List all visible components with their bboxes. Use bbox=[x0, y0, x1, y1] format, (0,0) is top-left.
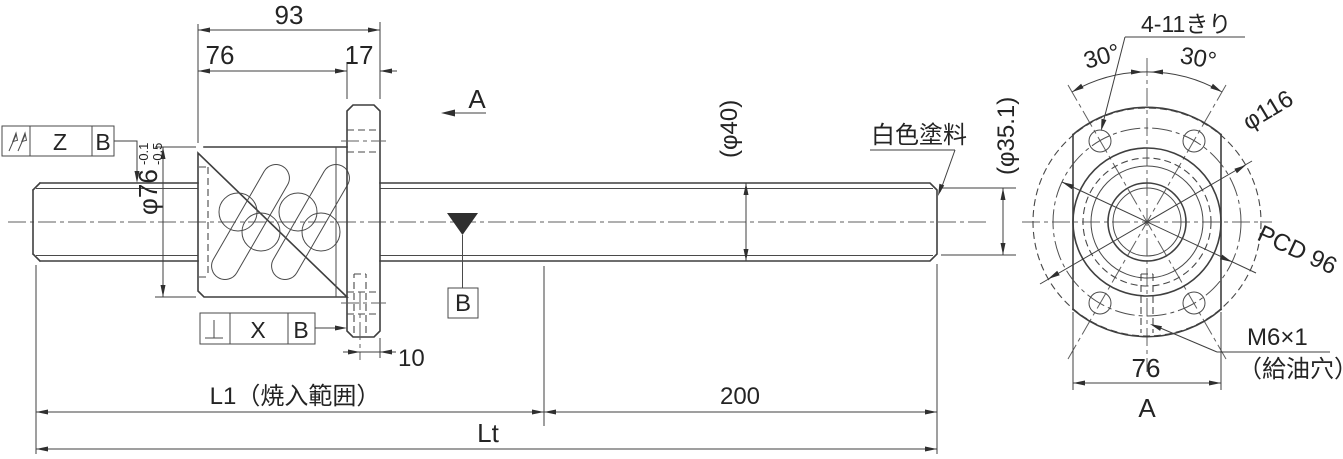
dim-l1-200-lt: L1（焼入範囲） 200 Lt bbox=[36, 264, 937, 454]
gdt-runout-datum: B bbox=[95, 129, 110, 155]
dim-10: 10 bbox=[343, 338, 425, 372]
end-view-label: A bbox=[1138, 393, 1156, 423]
view-arrow-a-text: A bbox=[468, 84, 486, 114]
gdt-perpendicularity-frame: X B bbox=[200, 313, 347, 344]
dim-200-text: 200 bbox=[720, 383, 760, 410]
ball-1 bbox=[219, 193, 257, 231]
dim-nut-od-tol-upper: -0.1 bbox=[136, 143, 151, 165]
technical-drawing: 93 76 17 φ76 -0.1 -0.5 bbox=[0, 0, 1343, 459]
surface-note: 白色塗料 bbox=[870, 122, 967, 196]
dim-17-text: 17 bbox=[345, 40, 374, 70]
gdt-runout-value: Z bbox=[53, 129, 67, 155]
surface-note-text: 白色塗料 bbox=[871, 122, 967, 149]
dim-10-text: 10 bbox=[398, 345, 425, 372]
total-runout-icon bbox=[9, 133, 27, 151]
dim-width-flats-text: 76 bbox=[1132, 353, 1161, 383]
gdt-runout-frame: Z B bbox=[2, 126, 140, 183]
dim-pcd: PCD 96 bbox=[1062, 182, 1341, 280]
dim-shaft-od: (φ40) bbox=[716, 100, 749, 261]
dim-lt-text: Lt bbox=[477, 418, 499, 448]
dim-93-text: 93 bbox=[275, 0, 304, 30]
dim-angle-right-text: 30° bbox=[1178, 42, 1218, 75]
dim-nut-od-tol-lower: -0.5 bbox=[150, 143, 165, 165]
gdt-perp-datum: B bbox=[293, 317, 308, 343]
callout-bolt-holes: 4-11きり bbox=[1101, 11, 1245, 131]
dim-l1-text: L1（焼入範囲） bbox=[210, 383, 381, 410]
dim-shaft-od-text: (φ40) bbox=[716, 100, 743, 158]
view-arrow-a: A bbox=[441, 84, 486, 117]
dim-flange-od-text: φ116 bbox=[1238, 85, 1298, 136]
ball-4 bbox=[302, 213, 340, 251]
callout-bolt-holes-text: 4-11きり bbox=[1141, 11, 1231, 37]
ball-3 bbox=[279, 193, 317, 231]
dim-root-od: (φ35.1) bbox=[941, 97, 1020, 255]
dim-root-od-text: (φ35.1) bbox=[993, 97, 1020, 175]
dim-pcd-text: PCD 96 bbox=[1253, 220, 1341, 280]
callout-oil-hole-text: M6×1 bbox=[1247, 324, 1308, 351]
dim-nut-od: φ76 -0.1 -0.5 bbox=[133, 143, 196, 297]
main-view: 93 76 17 φ76 -0.1 -0.5 bbox=[2, 0, 1020, 454]
dim-76-17: 76 17 bbox=[198, 40, 397, 99]
ball-2 bbox=[242, 213, 280, 251]
dim-76-text: 76 bbox=[206, 40, 235, 70]
datum-b: B bbox=[447, 213, 478, 318]
nut-flange bbox=[341, 105, 386, 360]
gdt-perp-value: X bbox=[250, 317, 265, 343]
datum-triangle-icon bbox=[447, 213, 478, 235]
perpendicularity-icon bbox=[205, 320, 223, 338]
drawing-canvas: 93 76 17 φ76 -0.1 -0.5 bbox=[0, 0, 1343, 459]
end-view: 4-11きり 30° 30° φ116 PCD 96 bbox=[1022, 11, 1343, 423]
callout-oil-hole-note: （給油穴） bbox=[1238, 356, 1343, 383]
datum-b-text: B bbox=[455, 290, 471, 317]
